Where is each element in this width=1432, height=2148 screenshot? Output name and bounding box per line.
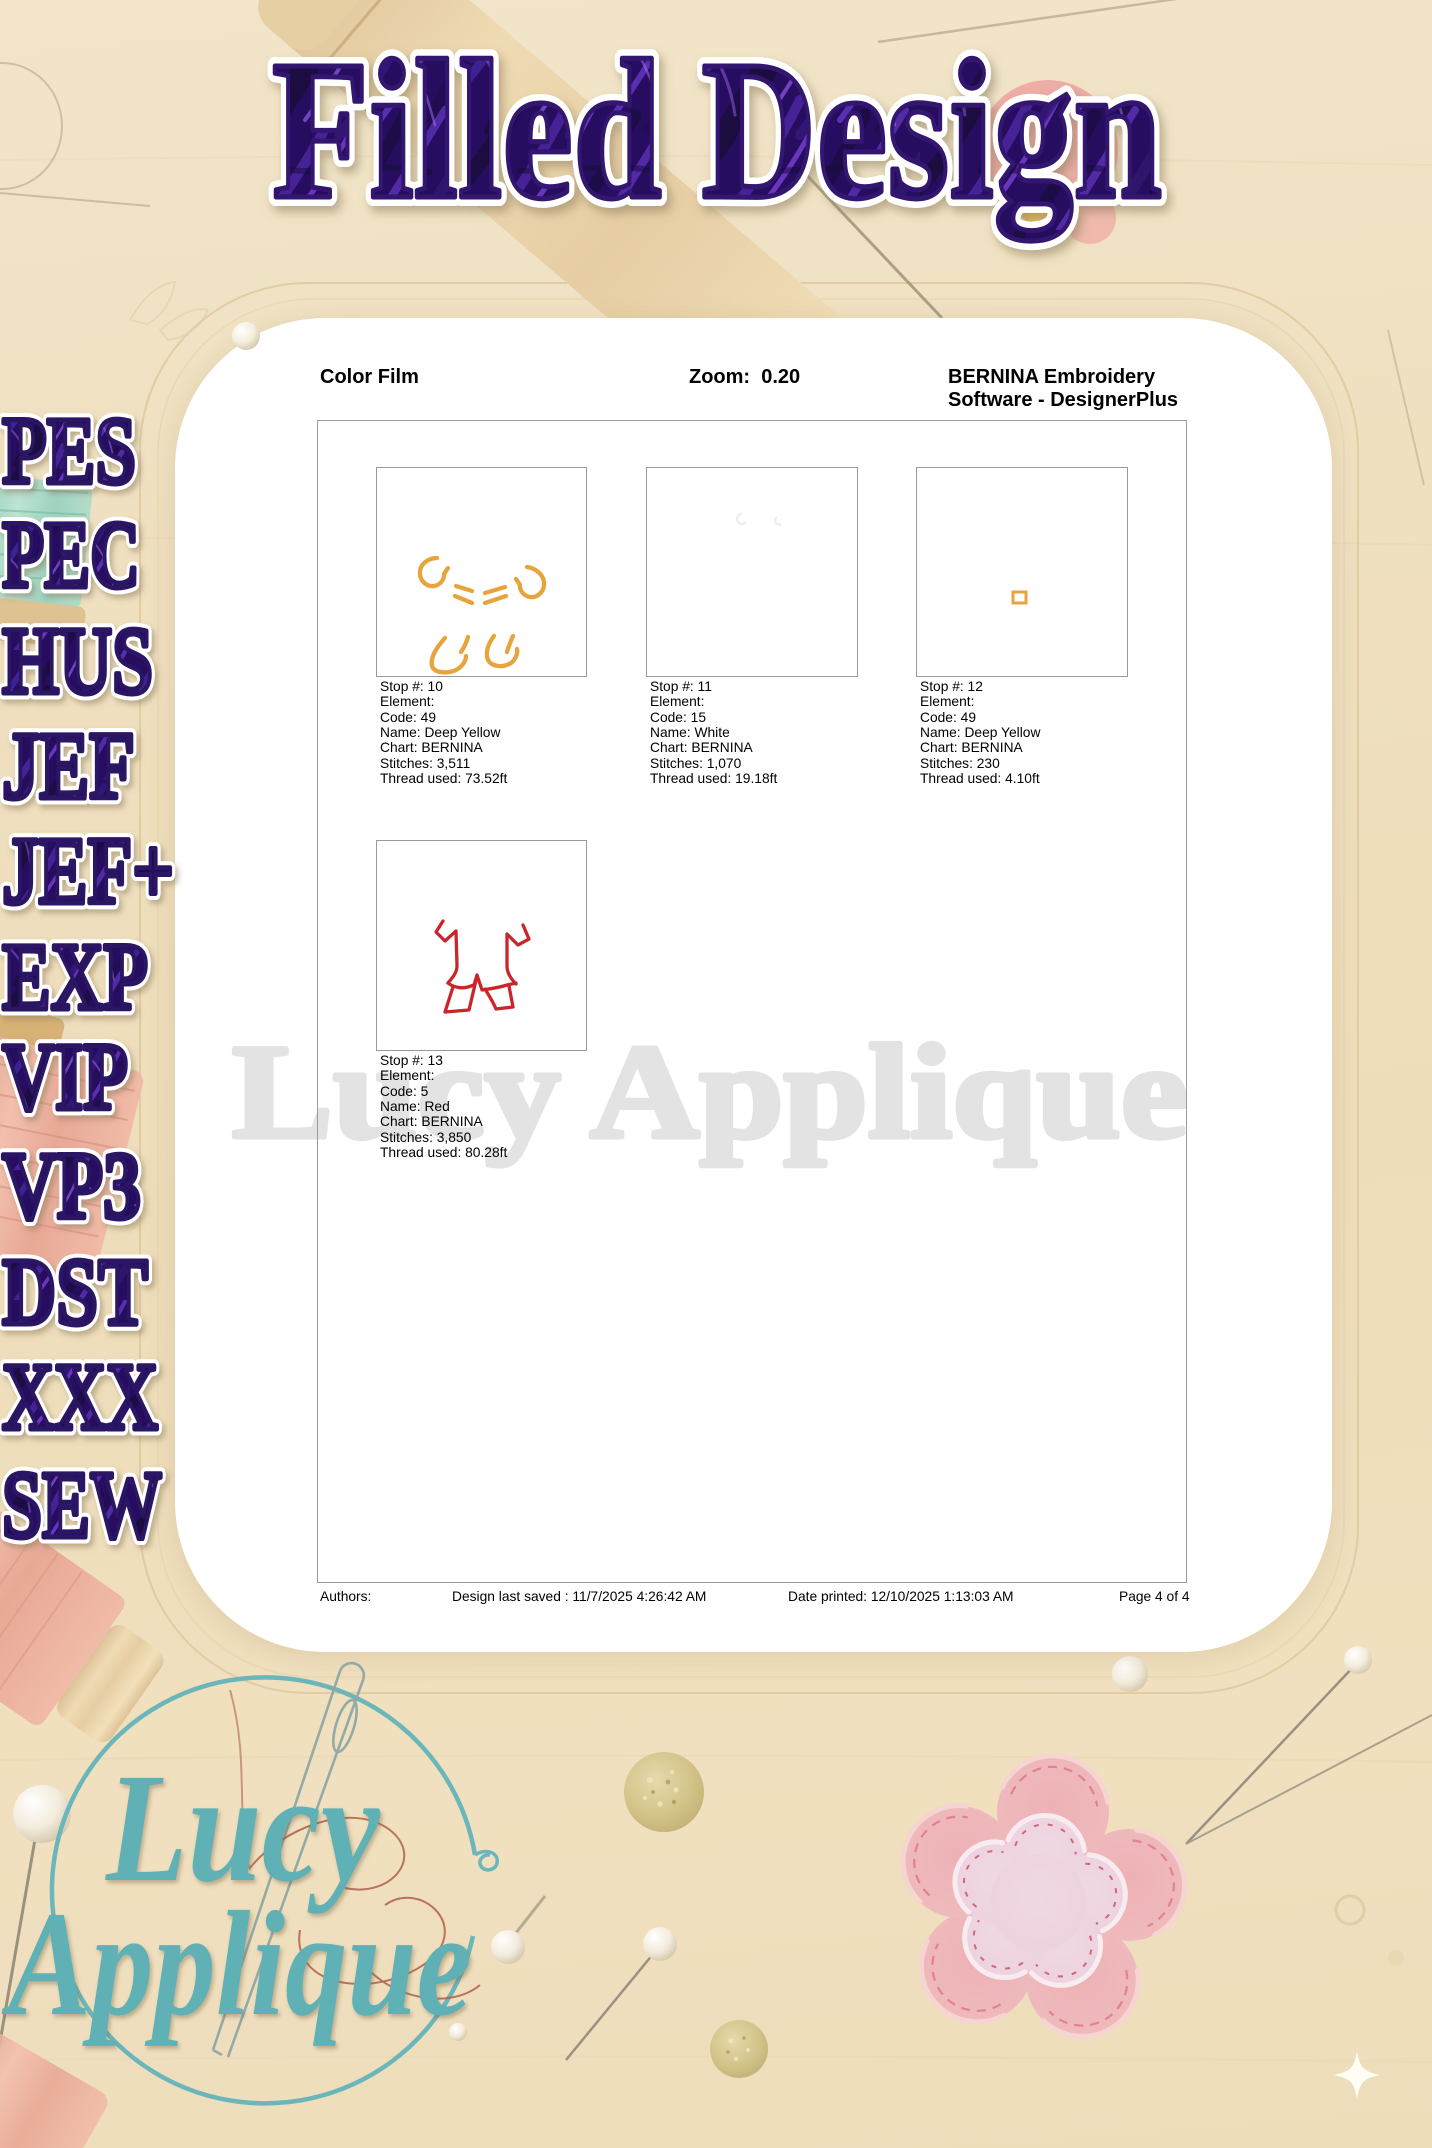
svg-text:SEW: SEW (2, 1451, 162, 1558)
svg-text:JEF: JEF (2, 712, 135, 819)
svg-text:EXP: EXP (2, 923, 148, 1030)
svg-text:Applique: Applique (1, 1881, 472, 2047)
svg-text:Filled Design: Filled Design (272, 20, 1162, 241)
svg-text:DST: DST (2, 1238, 148, 1345)
svg-text:PES: PES (2, 397, 136, 504)
svg-text:PEC: PEC (2, 501, 140, 608)
svg-text:JEF+: JEF+ (2, 817, 174, 924)
svg-text:VIP: VIP (2, 1023, 128, 1130)
svg-text:VP3: VP3 (2, 1132, 141, 1239)
svg-text:HUS: HUS (2, 607, 153, 714)
svg-text:XXX: XXX (2, 1343, 158, 1450)
